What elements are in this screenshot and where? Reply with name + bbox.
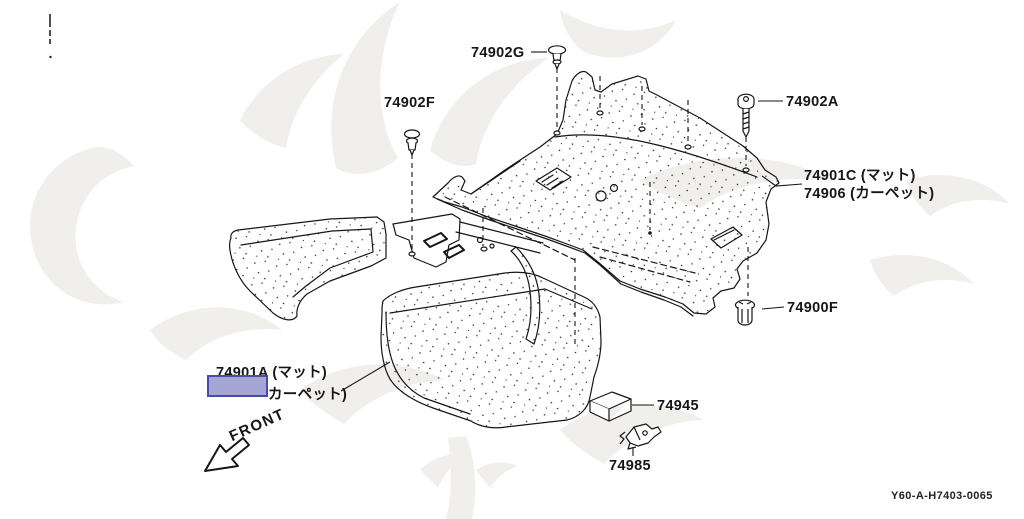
callout-74902F[interactable]: 74902F: [384, 94, 435, 112]
callout-74985[interactable]: 74985: [609, 457, 651, 475]
drawing-code: Y60-A-H7403-0065: [891, 487, 993, 505]
exploded-parts-drawing: [0, 0, 1024, 519]
grommet-74900F-icon: [736, 300, 755, 325]
callout-74902A[interactable]: 74902A: [786, 93, 839, 111]
callout-74906[interactable]: 74906 (カーペット): [804, 185, 934, 203]
callout-74902G[interactable]: 74902G: [471, 44, 524, 62]
front-direction-arrow: [205, 438, 249, 471]
push-clip-74902F-icon: [405, 130, 420, 155]
part-highlight-box[interactable]: [207, 375, 268, 397]
push-clip-74902G-icon: [549, 46, 566, 69]
screw-74902A-icon: [738, 94, 754, 137]
callout-74900F[interactable]: 74900F: [787, 299, 838, 317]
front-mat-main-panel: [381, 272, 601, 428]
callout-74901A-carpet[interactable]: カーペット): [268, 386, 347, 404]
clip-point: [648, 231, 652, 235]
callout-74901C[interactable]: 74901C (マット): [804, 167, 916, 185]
callout-74945[interactable]: 74945: [657, 397, 699, 415]
front-mat-left-footwell: [230, 217, 386, 320]
parts-diagram-page: 74902G 74902F 74902A 74901C (マット) 74906 …: [0, 0, 1024, 519]
page-border-tick: [49, 14, 51, 58]
